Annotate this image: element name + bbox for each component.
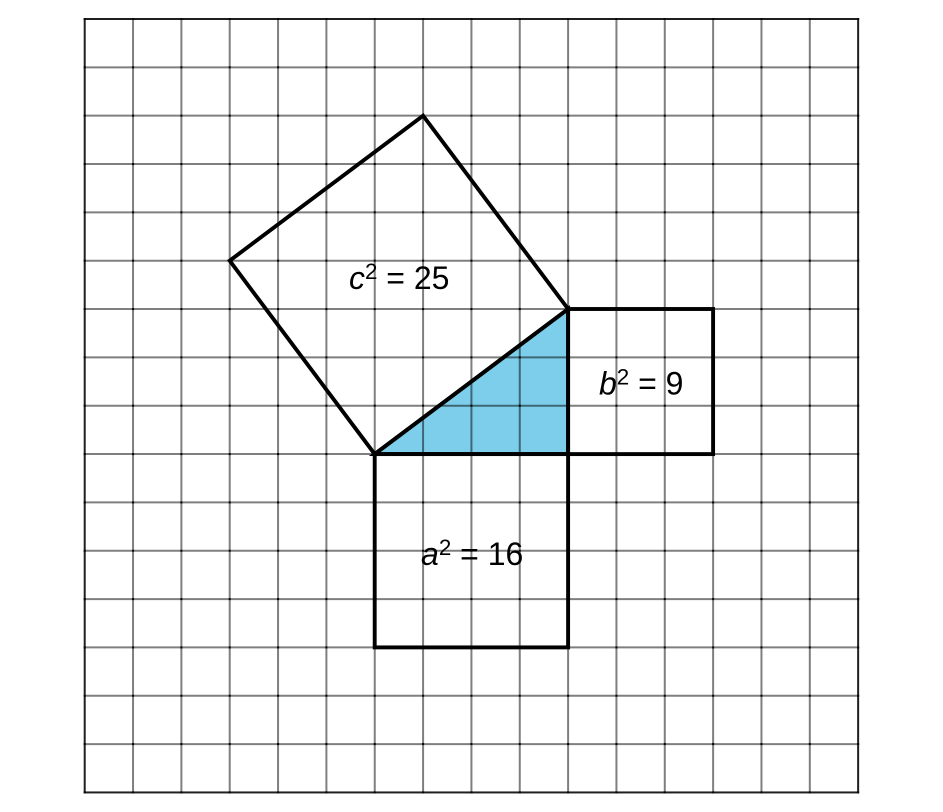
svg-text:c2 = 25: c2 = 25 [349, 259, 450, 296]
svg-text:a2 = 16: a2 = 16 [421, 535, 523, 572]
svg-text:b2 = 9: b2 = 9 [599, 365, 684, 402]
